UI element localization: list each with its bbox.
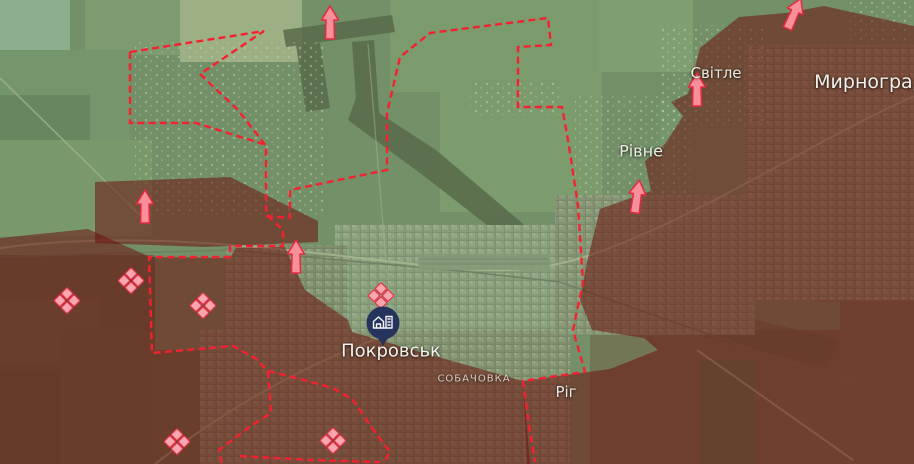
- overlay-layer: [0, 0, 914, 464]
- control-zones: [0, 0, 914, 464]
- map-canvas[interactable]: ПокровськСОБАЧОВКАМирноградСвітлеРівнеРі…: [0, 0, 914, 464]
